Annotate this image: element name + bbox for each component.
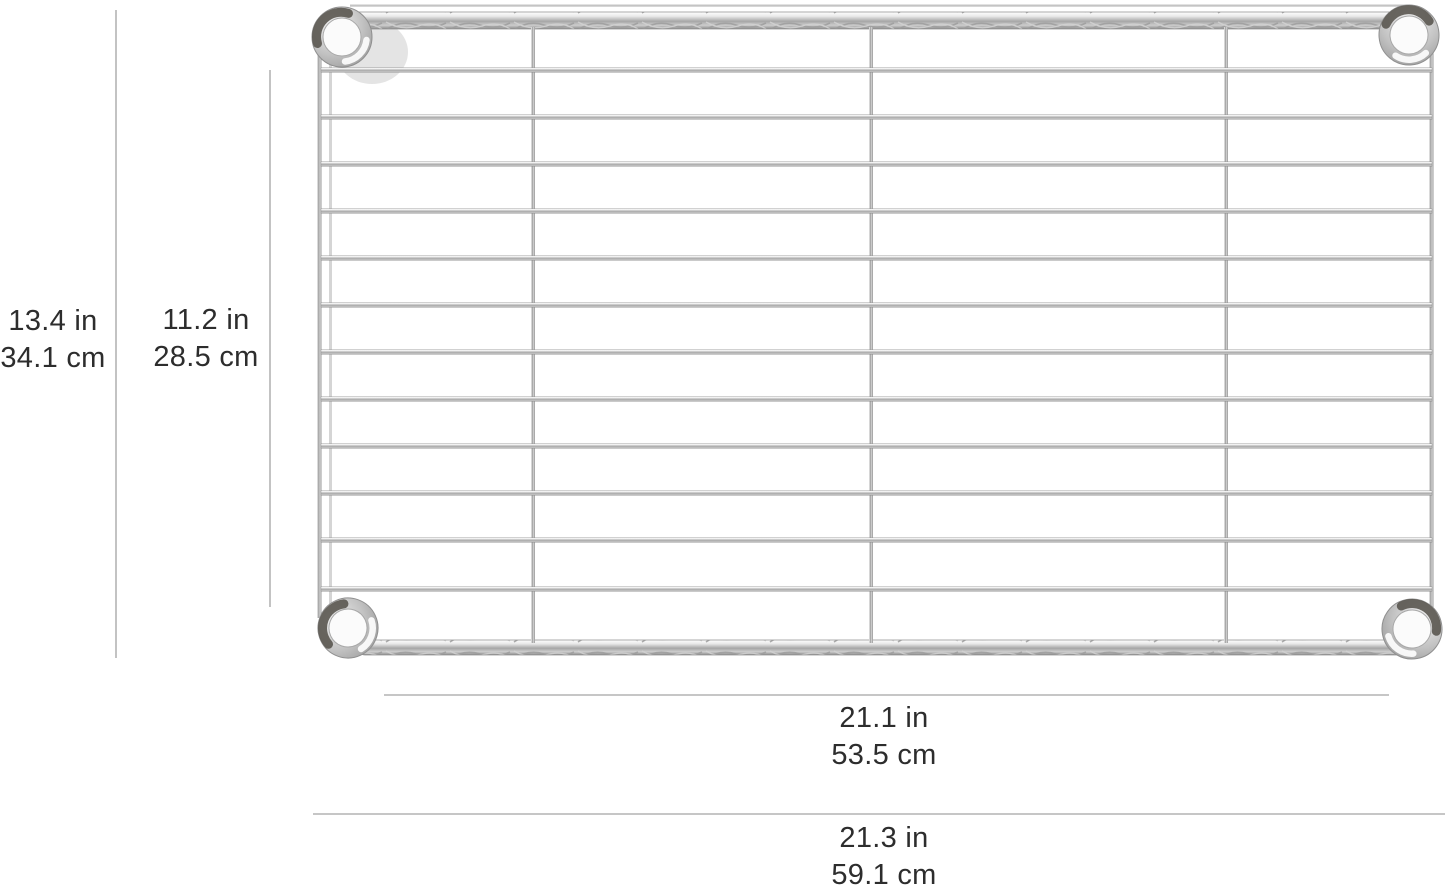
dimension-value-centimeters: 28.5 cm [153, 339, 259, 376]
wire-shelf-graphic [0, 0, 1445, 886]
dimension-value-centimeters: 53.5 cm [784, 737, 984, 774]
dimension-value-centimeters: 59.1 cm [784, 857, 984, 886]
corner-collar-top-left [312, 7, 372, 67]
dimension-value-inches: 13.4 in [0, 303, 106, 340]
dimension-label-bottom-inner: 21.1 in 53.5 cm [784, 700, 984, 774]
dimension-label-bottom-outer: 21.3 in 59.1 cm [784, 820, 984, 886]
shelf-body [308, 0, 1445, 668]
shelf-top-thin-wire [350, 5, 1408, 7]
dimension-value-inches: 11.2 in [153, 302, 259, 339]
shelf-horizontal-wires [321, 68, 1432, 592]
dimension-label-left-outer: 13.4 in 34.1 cm [0, 303, 106, 377]
dimension-label-left-inner: 11.2 in 28.5 cm [153, 302, 259, 376]
shelf-left-edge-wire [317, 48, 322, 618]
dimension-value-centimeters: 34.1 cm [0, 340, 106, 377]
dimension-value-inches: 21.3 in [784, 820, 984, 857]
shelf-right-edge-wire [1429, 50, 1434, 615]
dimension-value-inches: 21.1 in [784, 700, 984, 737]
product-dimension-image: 13.4 in 34.1 cm 11.2 in 28.5 cm 21.1 in … [0, 0, 1445, 886]
shelf-left-inner-wire [329, 60, 332, 612]
shelf-top-rail [344, 12, 1414, 29]
shelf-bottom-rail [358, 640, 1406, 655]
